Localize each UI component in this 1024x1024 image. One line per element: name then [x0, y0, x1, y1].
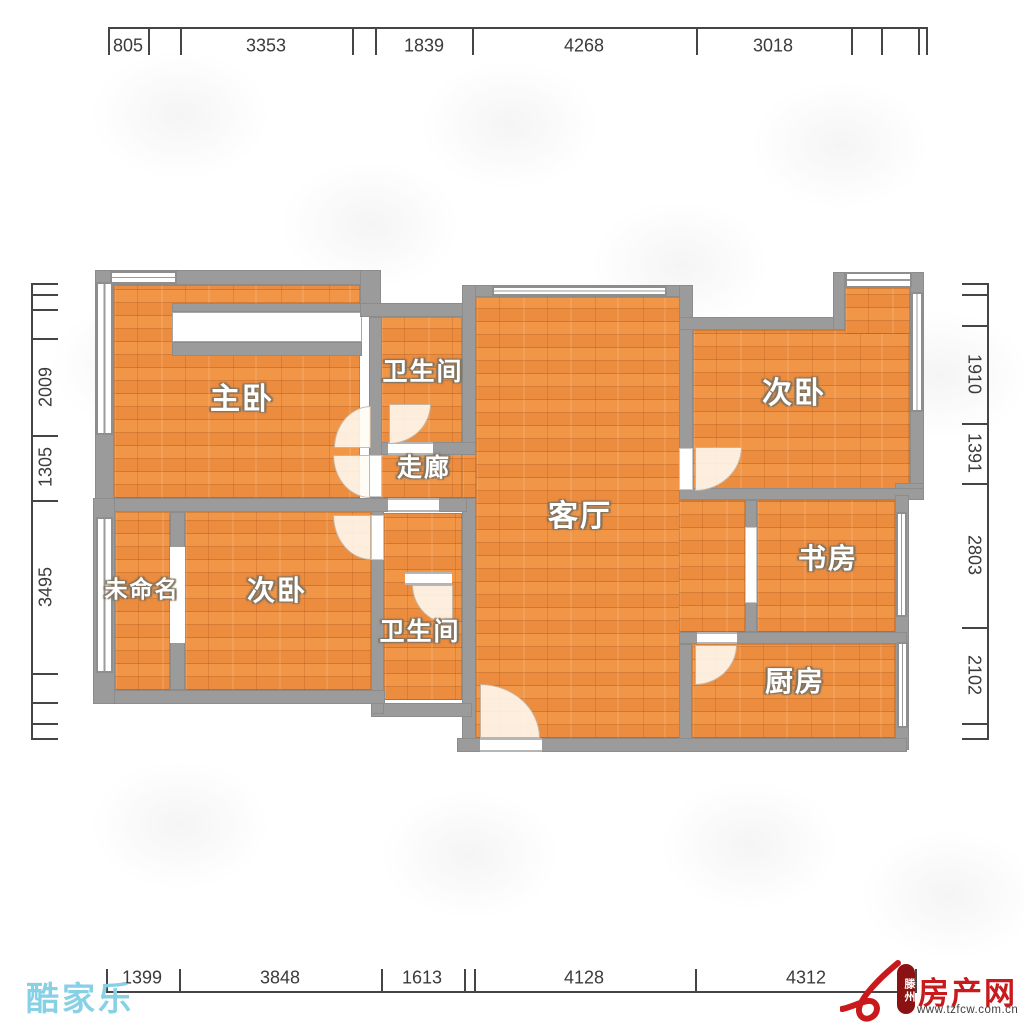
door-leaf-bedroom-bl — [371, 515, 384, 560]
master-notch-void — [172, 312, 362, 342]
kujiale-logo: 酷家乐 — [26, 972, 134, 1020]
fcw-site-url: www.tzfcw.com.cn — [917, 1004, 1018, 1016]
room-label-study: 书房 — [798, 537, 858, 577]
dim-line-bottom — [106, 991, 917, 993]
dim-tick — [474, 969, 476, 993]
dim-line-right — [987, 283, 989, 740]
dim-line-top — [108, 27, 928, 29]
dim-tick — [31, 738, 58, 740]
dim-tick — [851, 27, 853, 55]
dim-line-left — [31, 283, 33, 740]
floor-bedroom-top-right-bay — [845, 288, 910, 334]
dim-tick — [962, 627, 989, 629]
fcw-badge: 滕州 — [897, 964, 915, 1014]
floor-corridor-opening — [462, 453, 476, 498]
dim-tick — [962, 483, 989, 485]
door-sill-entrance — [480, 738, 542, 752]
room-label-kitchen: 厨房 — [765, 660, 825, 700]
watermark-blob — [660, 780, 840, 910]
window-living-top — [492, 286, 667, 296]
dim-label-top: 4268 — [564, 36, 604, 57]
dim-tick — [180, 27, 182, 55]
dim-label-top: 805 — [113, 36, 143, 57]
wall-bedroom-tr-top — [679, 317, 845, 330]
window-bedroom-tr-right — [911, 292, 923, 412]
dim-label-right: 1391 — [964, 433, 985, 473]
dim-tick — [31, 723, 58, 725]
window-bedroom-tr-bay — [845, 272, 912, 288]
dim-tick — [962, 723, 989, 725]
dim-label-right: 1910 — [964, 354, 985, 394]
dim-label-left: 1305 — [36, 447, 57, 487]
dim-tick — [696, 27, 698, 55]
dim-tick — [31, 500, 58, 502]
wall-bathroom-bottom-edge — [371, 703, 472, 717]
room-label-bathroom-bottom: 卫生间 — [379, 612, 460, 648]
dim-label-right: 2803 — [964, 535, 985, 575]
dim-label-top: 3353 — [246, 36, 286, 57]
wall-block-bottom — [93, 690, 385, 704]
watermark-blob — [750, 80, 930, 210]
window-study-right — [896, 512, 907, 617]
dim-tick — [31, 283, 58, 285]
wall-kitchen-left — [679, 644, 692, 750]
wall-living-left-upper — [462, 285, 476, 453]
dim-tick — [918, 27, 920, 55]
window-master-top — [110, 271, 177, 284]
window-kitchen-right — [897, 642, 908, 728]
door-sill-corridor-bath — [388, 498, 439, 512]
door-sill-kitchen — [697, 632, 737, 644]
dim-tick — [464, 969, 466, 993]
watermark-blob — [380, 790, 560, 920]
window-master-left — [96, 282, 113, 435]
floor-plan-image: 主卧 卫生间 走廊 客厅 次卧 书房 未命名 次卧 卫生间 厨房 805 335… — [0, 0, 1024, 1024]
dim-tick — [31, 435, 58, 437]
dim-label-left: 2009 — [36, 367, 57, 407]
dim-tick — [352, 27, 354, 55]
dim-label-bottom: 1613 — [402, 968, 442, 989]
wall-master-notch-bottom — [172, 342, 362, 356]
floor-living-room-ext — [679, 500, 745, 632]
dim-tick — [472, 27, 474, 55]
dim-tick — [31, 702, 58, 704]
dim-tick — [31, 309, 58, 311]
wall-bathroom-top — [360, 303, 470, 317]
dim-label-right: 2102 — [964, 655, 985, 695]
door-leaf-bedroom-tr — [679, 448, 693, 490]
dim-tick — [962, 738, 989, 740]
door-sill-bathroom-bottom — [405, 572, 452, 585]
room-label-bathroom-top: 卫生间 — [382, 352, 463, 388]
dim-label-left: 3495 — [36, 567, 57, 607]
dim-tick — [962, 423, 989, 425]
dim-tick — [962, 325, 989, 327]
watermark-blob — [90, 50, 270, 180]
dim-label-bottom: 4312 — [786, 968, 826, 989]
dim-tick — [31, 338, 58, 340]
dim-tick — [381, 969, 383, 993]
room-label-bedroom-tr: 次卧 — [762, 368, 826, 412]
dim-tick — [695, 969, 697, 993]
watermark-blob — [90, 760, 270, 890]
room-label-master: 主卧 — [210, 374, 274, 418]
dim-label-bottom: 4128 — [564, 968, 604, 989]
dim-tick — [881, 27, 883, 55]
watermark-blob — [860, 830, 1024, 960]
wall-bedroom-tr-bottom — [679, 488, 924, 500]
fcw-logo-swoosh-icon — [840, 960, 902, 1024]
dim-tick — [926, 27, 928, 55]
wall-master-notch-top — [172, 303, 362, 312]
dim-tick — [31, 673, 58, 675]
door-leaf-master — [369, 455, 382, 497]
wall-bay-stub-left — [833, 272, 845, 330]
dim-tick — [148, 27, 150, 55]
room-label-living: 客厅 — [548, 491, 612, 535]
room-label-bedroom-bl: 次卧 — [247, 569, 307, 609]
dim-tick — [375, 27, 377, 55]
dim-tick — [179, 969, 181, 993]
dim-tick — [31, 294, 58, 296]
dim-tick — [108, 27, 110, 55]
door-leaf-study — [745, 527, 757, 603]
room-label-unnamed: 未命名 — [105, 570, 180, 604]
dim-label-top: 1839 — [404, 36, 444, 57]
dim-tick — [962, 294, 989, 296]
room-label-corridor: 走廊 — [397, 448, 451, 484]
dim-tick — [962, 283, 989, 285]
fcw-logo: 滕州 房产网 www.tzfcw.com.cn — [840, 948, 1024, 1024]
dim-label-bottom: 3848 — [260, 968, 300, 989]
dim-label-top: 3018 — [753, 36, 793, 57]
